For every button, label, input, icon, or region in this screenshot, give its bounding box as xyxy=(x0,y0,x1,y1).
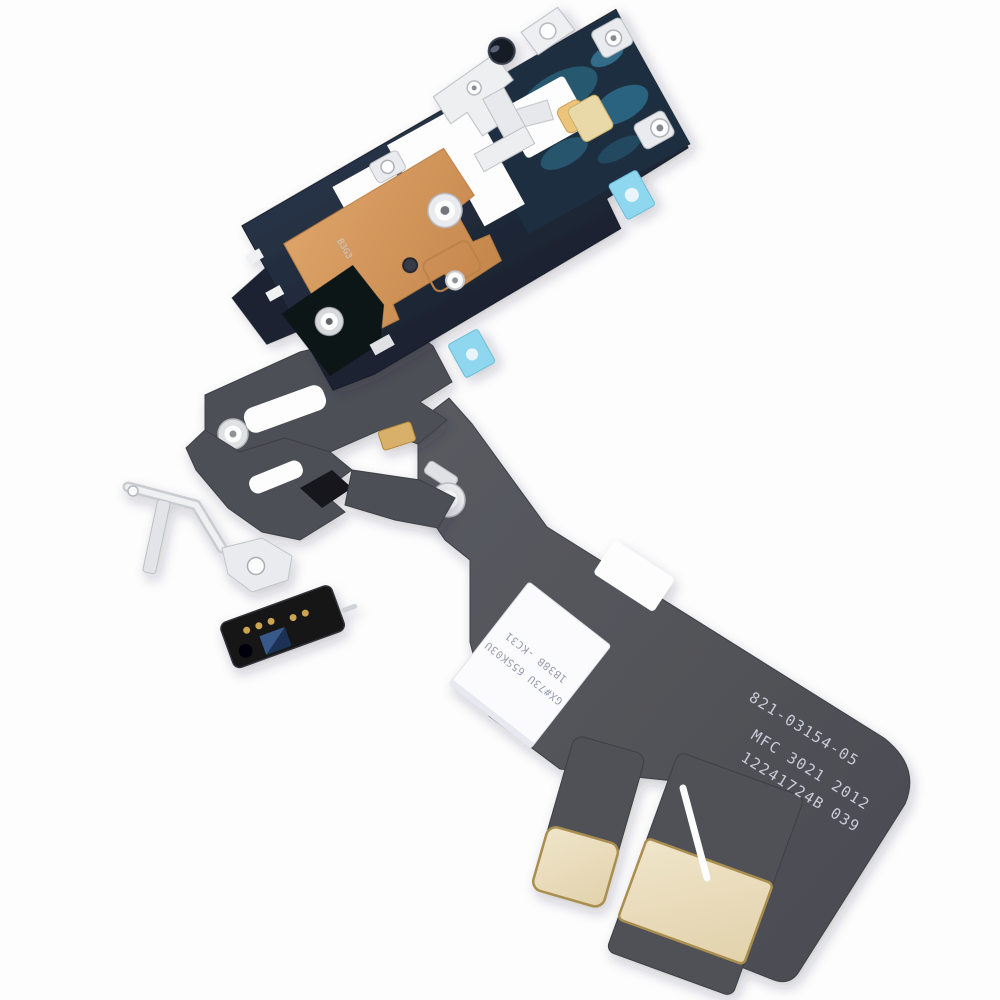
flex-cable-illustration: GX#73U 65SK03U 1B38B -KC31 821-03154-05 … xyxy=(0,0,1000,1000)
product-photo: GX#73U 65SK03U 1B38B -KC31 821-03154-05 … xyxy=(0,0,1000,1000)
